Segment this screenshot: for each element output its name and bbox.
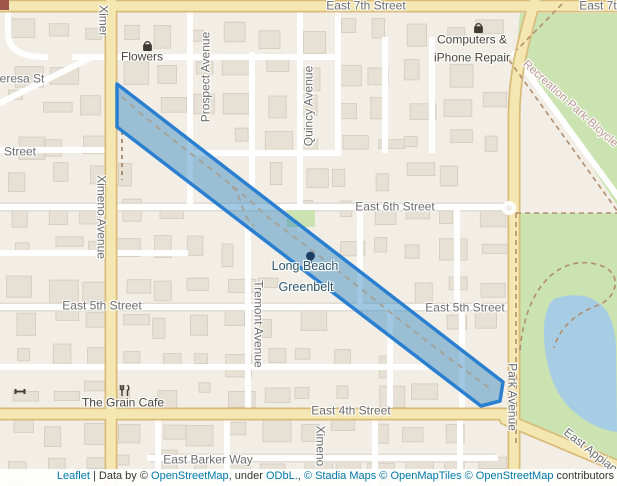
map-tiles: [0, 0, 617, 486]
attribution-link-openmaptiles[interactable]: © OpenMapTiles: [379, 470, 461, 482]
red-building: [0, 0, 9, 10]
map-canvas[interactable]: Leaflet | Data by © OpenStreetMap, under…: [0, 0, 617, 486]
attribution-text: , under: [229, 470, 266, 482]
attribution-link-leaflet[interactable]: Leaflet: [57, 470, 90, 482]
attribution-text: contributors: [553, 470, 614, 482]
attribution-link-odbl[interactable]: ODbL.: [266, 470, 298, 482]
attribution-link-stadia-maps[interactable]: © Stadia Maps: [304, 470, 376, 482]
roundabout-center: [506, 205, 512, 211]
attribution-link-openstreetmap[interactable]: OpenStreetMap: [151, 470, 229, 482]
attribution-link-openstreetmap[interactable]: © OpenStreetMap: [465, 470, 554, 482]
attribution-text: | Data by ©: [90, 470, 151, 482]
attribution-bar: Leaflet | Data by © OpenStreetMap, under…: [0, 469, 617, 486]
